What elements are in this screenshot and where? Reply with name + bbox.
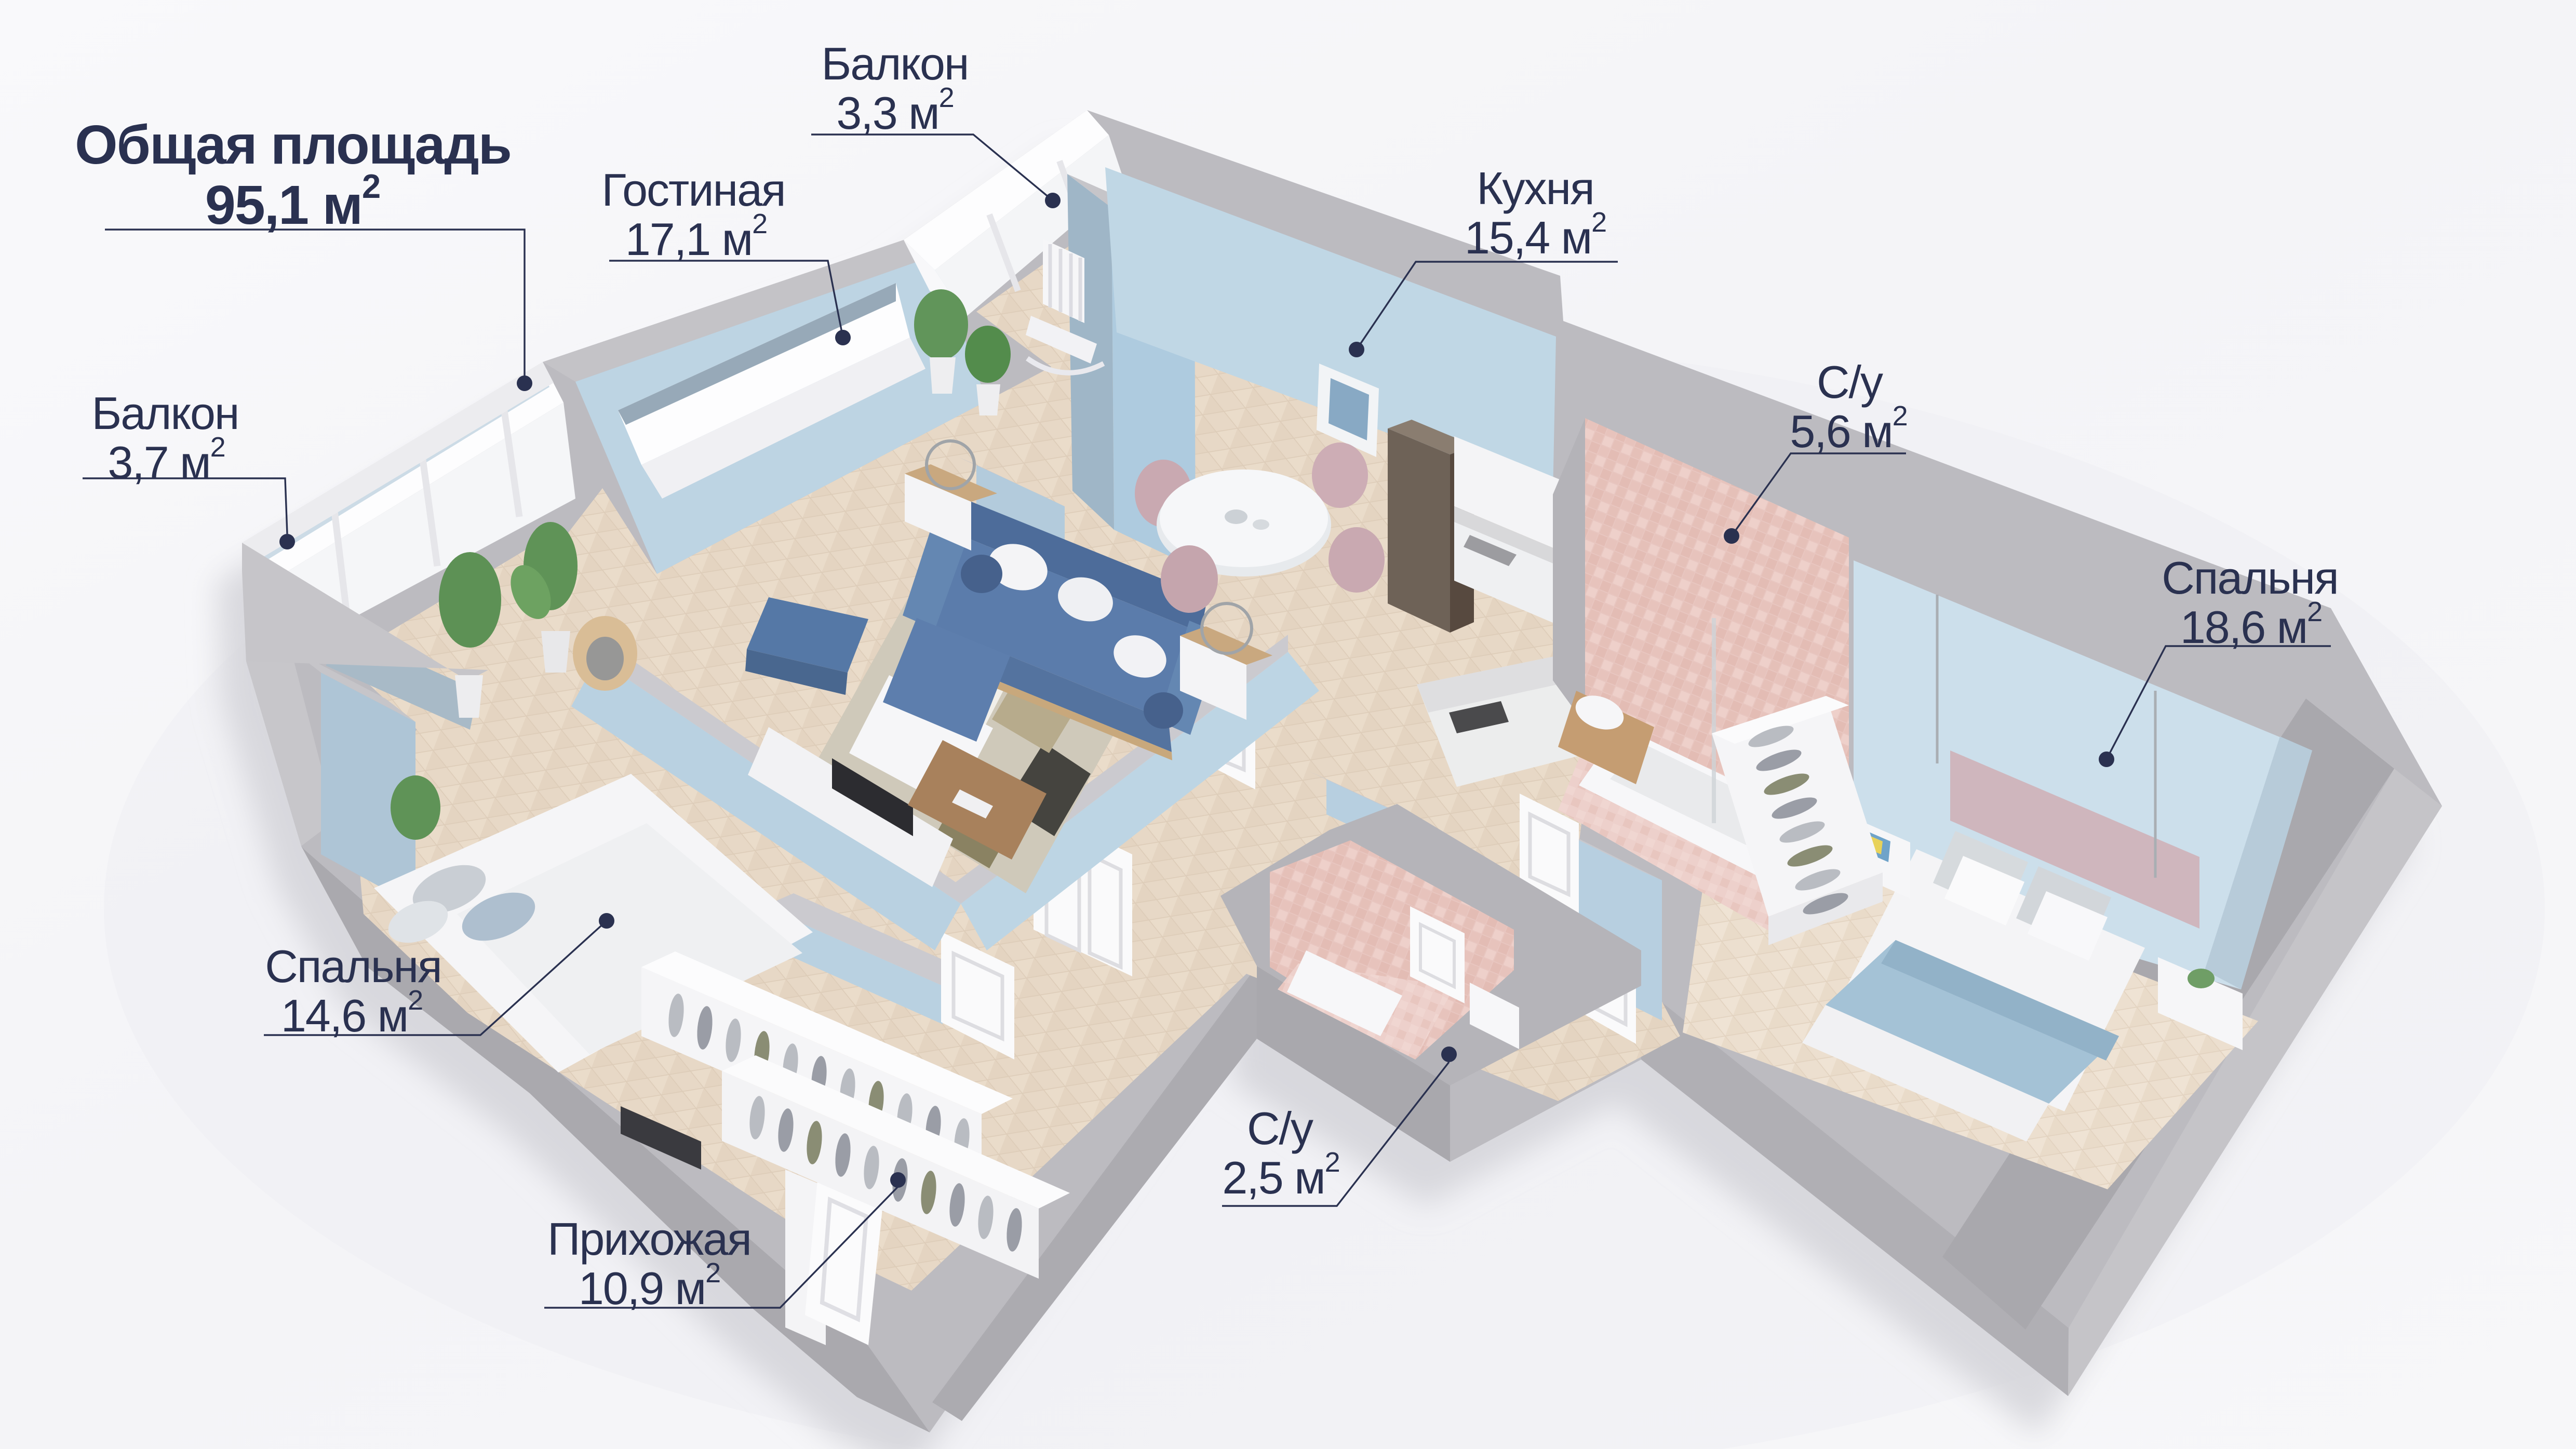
svg-text:10,9 м2: 10,9 м2 (579, 1257, 720, 1314)
svg-text:3,7 м2: 3,7 м2 (108, 432, 224, 488)
svg-text:95,1 м2: 95,1 м2 (205, 167, 380, 236)
svg-text:2,5 м2: 2,5 м2 (1222, 1147, 1339, 1203)
svg-text:Прихожая: Прихожая (547, 1213, 751, 1265)
svg-text:Кухня: Кухня (1477, 163, 1594, 214)
svg-text:С/у: С/у (1817, 356, 1883, 408)
svg-text:18,6 м2: 18,6 м2 (2180, 596, 2322, 653)
svg-text:Общая площадь: Общая площадь (75, 114, 511, 176)
svg-text:14,6 м2: 14,6 м2 (281, 985, 422, 1041)
svg-text:С/у: С/у (1247, 1103, 1313, 1154)
svg-text:5,6 м2: 5,6 м2 (1790, 400, 1907, 457)
svg-text:3,3 м2: 3,3 м2 (836, 82, 953, 139)
svg-text:15,4 м2: 15,4 м2 (1465, 207, 1606, 263)
svg-text:17,1 м2: 17,1 м2 (625, 208, 767, 265)
